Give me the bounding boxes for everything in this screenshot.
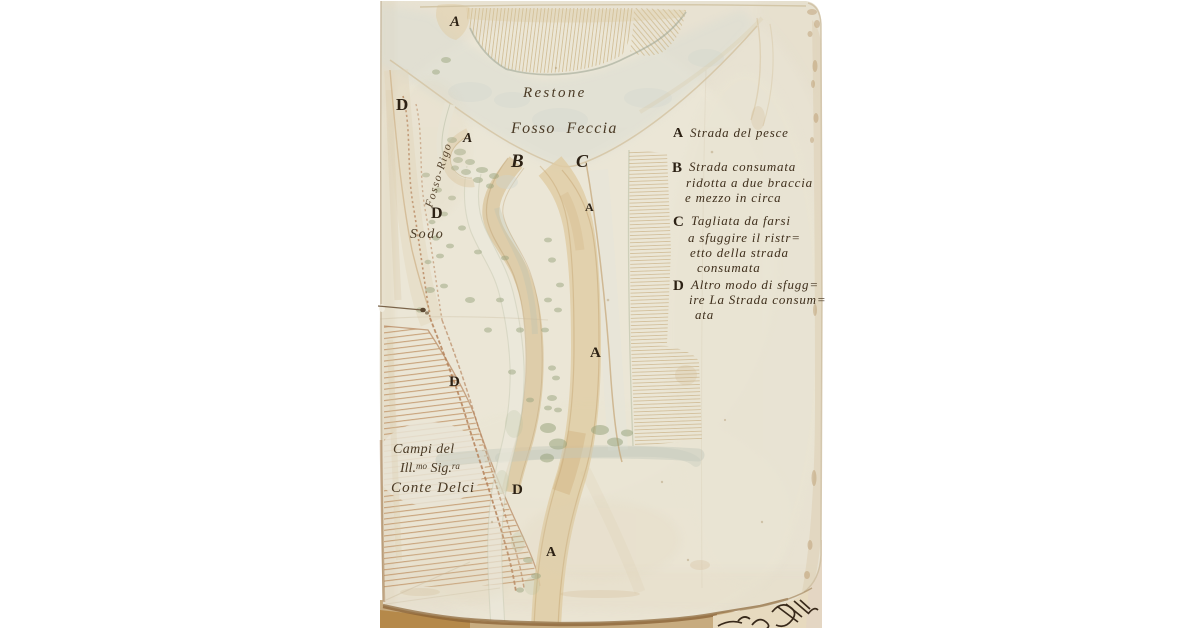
svg-text:Fosso Feccia: Fosso Feccia (510, 120, 618, 137)
svg-text:Altro modo di sfugg=: Altro modo di sfugg= (690, 277, 819, 292)
svg-text:C: C (673, 214, 684, 230)
svg-text:A: A (449, 14, 460, 30)
svg-text:Ill.mo Sig.ra: Ill.mo Sig.ra (399, 461, 460, 476)
svg-text:A: A (590, 345, 601, 361)
svg-text:Sodo: Sodo (410, 227, 444, 242)
svg-text:ridotta a due braccia: ridotta a due braccia (686, 175, 813, 190)
svg-text:Campi del: Campi del (393, 442, 455, 457)
svg-text:consumata: consumata (697, 260, 761, 275)
svg-text:Restone: Restone (522, 85, 587, 101)
svg-text:A: A (462, 131, 472, 146)
svg-text:etto della strada: etto della strada (690, 245, 789, 260)
svg-text:e mezzo in circa: e mezzo in circa (685, 190, 781, 205)
svg-text:A: A (585, 200, 594, 214)
svg-text:Strada consumata: Strada consumata (689, 159, 796, 174)
svg-text:B: B (672, 160, 682, 176)
svg-text:C: C (576, 151, 589, 171)
svg-text:A: A (673, 126, 684, 141)
svg-text:a sfuggire il ristr=: a sfuggire il ristr= (688, 230, 801, 245)
svg-text:D: D (512, 482, 523, 498)
svg-text:ata: ata (695, 307, 714, 322)
svg-text:Conte Delci: Conte Delci (391, 480, 475, 496)
svg-text:Tagliata da farsi: Tagliata da farsi (691, 213, 791, 228)
svg-text:ire La Strada consum=: ire La Strada consum= (689, 292, 826, 307)
svg-text:A: A (546, 545, 557, 560)
svg-text:D: D (396, 95, 408, 114)
svg-text:B: B (510, 151, 524, 172)
svg-text:D: D (449, 374, 460, 390)
svg-text:D: D (673, 278, 684, 294)
svg-text:Strada del pesce: Strada del pesce (690, 125, 789, 140)
